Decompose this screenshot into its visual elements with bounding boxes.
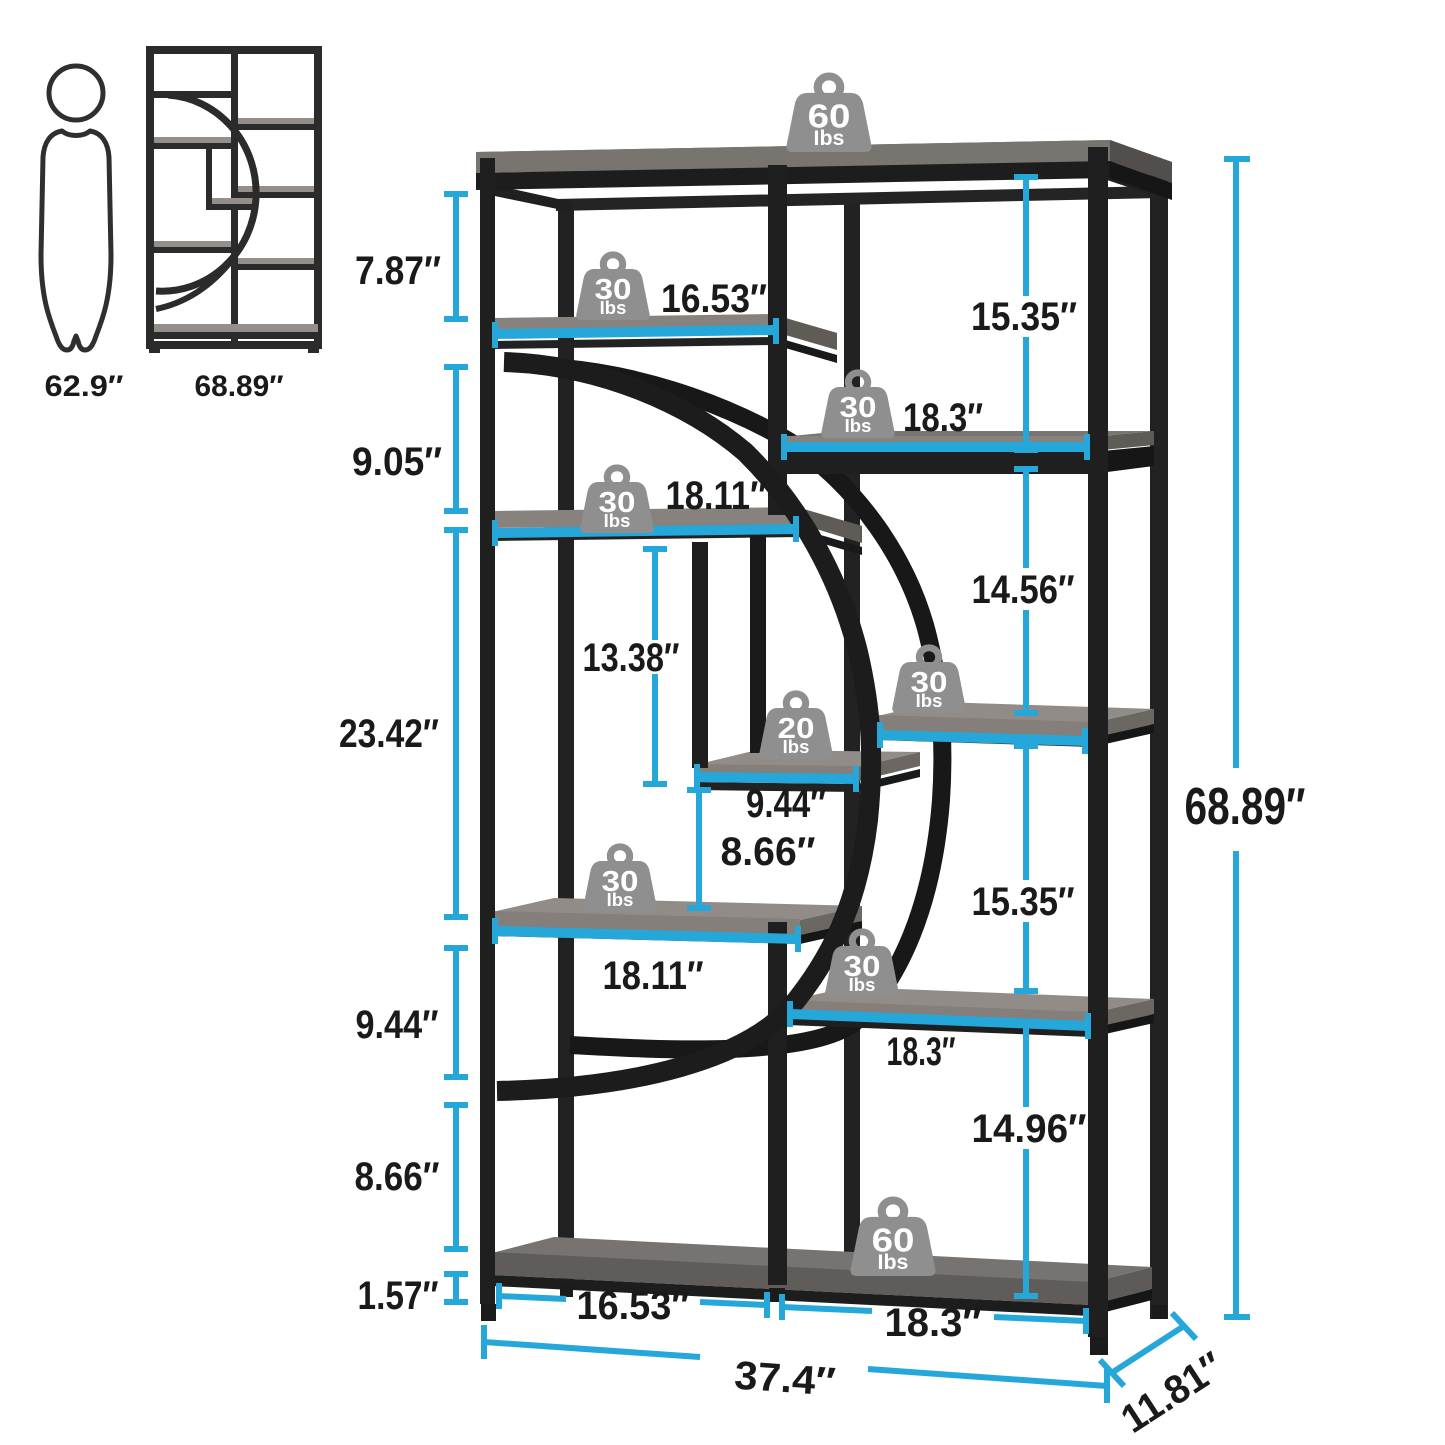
svg-text:16.53″: 16.53″	[577, 1284, 690, 1328]
svg-text:15.35″: 15.35″	[972, 880, 1075, 924]
svg-text:68.89″: 68.89″	[1185, 778, 1306, 836]
svg-text:Ibs: Ibs	[783, 736, 810, 757]
svg-text:18.3″: 18.3″	[887, 1030, 956, 1074]
svg-text:8.66″: 8.66″	[355, 1155, 440, 1199]
svg-text:Ibs: Ibs	[849, 974, 876, 995]
svg-text:Ibs: Ibs	[607, 889, 634, 910]
svg-text:9.44″: 9.44″	[356, 1003, 439, 1047]
svg-text:13.38″: 13.38″	[583, 636, 680, 680]
svg-text:15.35″: 15.35″	[971, 295, 1077, 339]
svg-text:68.89″: 68.89″	[195, 370, 284, 403]
svg-text:8.66″: 8.66″	[721, 830, 816, 874]
svg-text:Ibs: Ibs	[604, 510, 631, 531]
svg-text:18.3″: 18.3″	[903, 396, 983, 440]
svg-text:7.87″: 7.87″	[355, 249, 441, 293]
svg-text:Ibs: Ibs	[878, 1250, 909, 1274]
svg-text:Ibs: Ibs	[814, 126, 845, 150]
svg-text:9.44″: 9.44″	[746, 782, 826, 826]
svg-text:14.96″: 14.96″	[972, 1107, 1087, 1151]
svg-text:23.42″: 23.42″	[339, 712, 439, 756]
svg-text:16.53″: 16.53″	[661, 277, 767, 321]
svg-text:18.11″: 18.11″	[603, 954, 704, 998]
svg-text:Ibs: Ibs	[845, 415, 872, 436]
svg-text:18.11″: 18.11″	[666, 474, 767, 518]
svg-text:62.9″: 62.9″	[45, 370, 124, 403]
svg-text:14.56″: 14.56″	[972, 568, 1075, 612]
svg-text:Ibs: Ibs	[600, 297, 627, 318]
svg-text:Ibs: Ibs	[916, 690, 943, 711]
svg-text:1.57″: 1.57″	[358, 1274, 439, 1318]
svg-text:18.3″: 18.3″	[885, 1301, 982, 1345]
svg-text:9.05″: 9.05″	[352, 440, 442, 484]
svg-text:37.4″: 37.4″	[733, 1354, 837, 1405]
